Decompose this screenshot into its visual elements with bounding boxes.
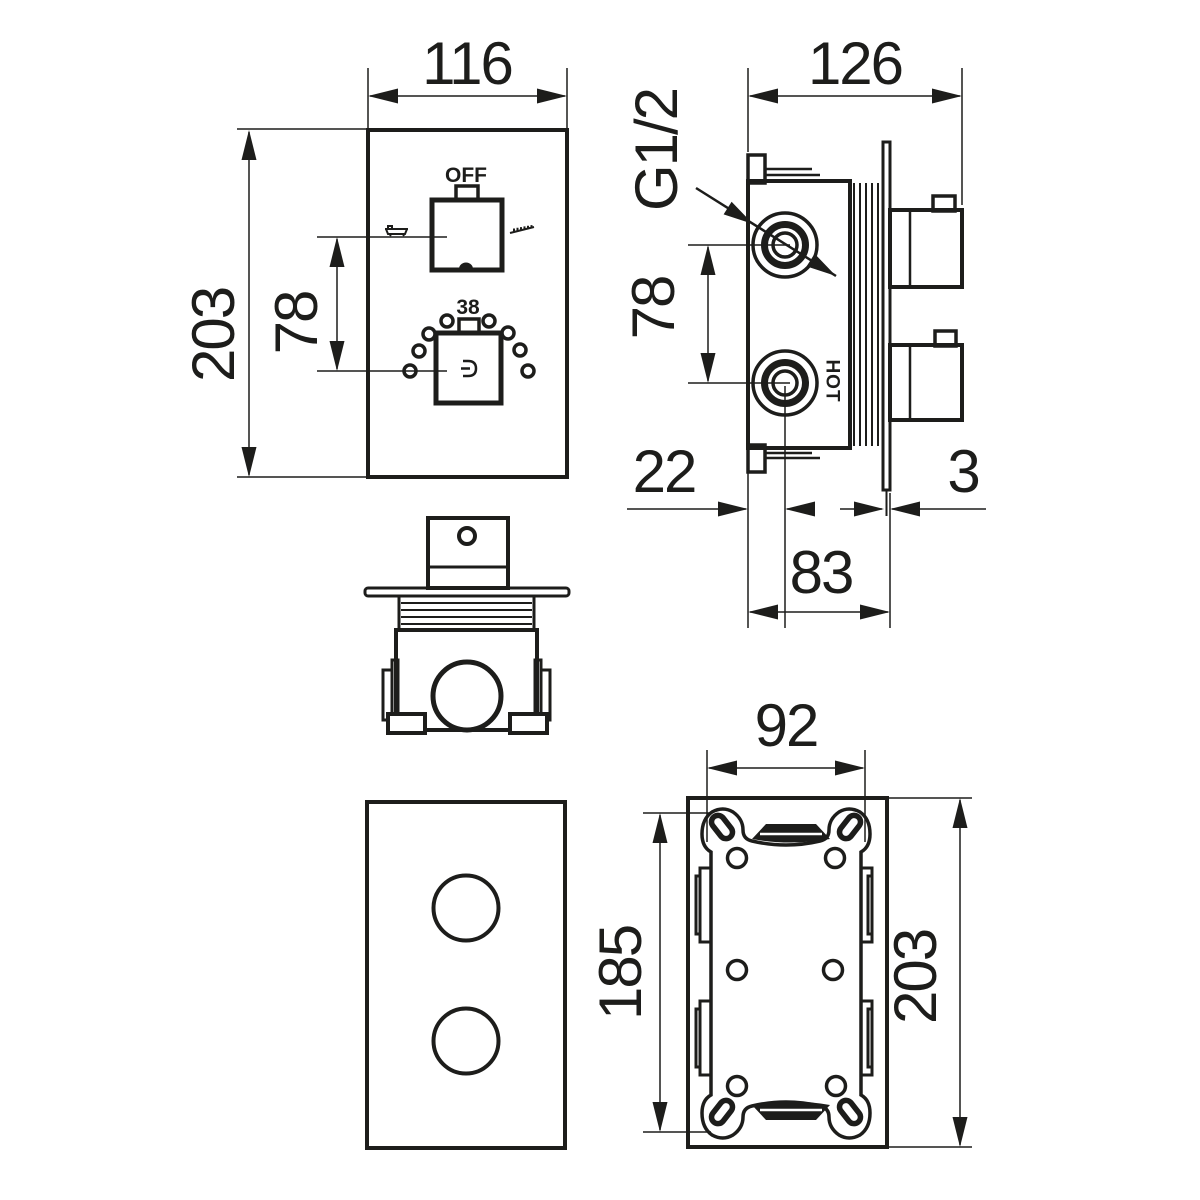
depth-83-label: 83	[790, 539, 853, 606]
hot-label: HOT	[821, 359, 842, 402]
body-tab-top	[748, 155, 765, 183]
front-width-label: 116	[422, 30, 512, 97]
box-height-label: 203	[882, 930, 949, 1024]
handle-upper	[890, 210, 962, 287]
bath-icon	[385, 226, 408, 236]
off-label: OFF	[445, 164, 487, 187]
labels: 116 203 78 OFF 38 126 G1/2 78 22 3 83 HO…	[180, 30, 979, 1024]
handle-lower	[890, 345, 962, 420]
front-spacing-dimension	[330, 237, 345, 371]
thread-lines	[401, 603, 532, 624]
plate-side-clips	[696, 868, 872, 1075]
housing-foot-right	[510, 714, 547, 733]
valve-body-view	[365, 518, 569, 733]
thread-size-label: G1/2	[623, 89, 690, 211]
wall-plate	[883, 142, 890, 490]
side-spacing-label: 78	[620, 277, 687, 340]
plate-height-label: 185	[587, 926, 654, 1020]
plate-3-label: 3	[947, 438, 978, 505]
diverter-knob-notch	[459, 263, 473, 270]
side-width-label: 126	[808, 30, 902, 97]
box-width-label: 92	[755, 692, 818, 759]
pipe-port	[433, 662, 501, 730]
offset-22-label: 22	[633, 438, 696, 505]
thread-ribs	[854, 183, 878, 446]
front-view	[237, 68, 567, 477]
side-spacing-dimension	[701, 245, 716, 383]
front-height-label: 203	[180, 288, 247, 382]
pipe-cover-tabs	[752, 824, 830, 1120]
technical-drawing: 116 203 78 OFF 38 126 G1/2 78 22 3 83 HO…	[0, 0, 1200, 1200]
housing-foot-left	[388, 714, 425, 733]
shower-spray-icon	[510, 225, 534, 233]
cover-hole-lower	[434, 1009, 499, 1074]
housing-side-clips	[383, 660, 550, 720]
cover-hole-upper	[434, 876, 499, 941]
mounting-holes	[728, 849, 846, 1096]
knob-screw-hole	[459, 528, 475, 544]
cover-plate-view	[367, 802, 565, 1148]
depth-dimension	[748, 605, 890, 620]
box-outline	[688, 798, 887, 1147]
front-spacing-label: 78	[263, 292, 330, 355]
brand-logo-icon	[461, 361, 476, 376]
diverter-knob	[432, 200, 502, 270]
temp-38-label: 38	[456, 296, 480, 319]
drawing-canvas: 116 203 78 OFF 38 126 G1/2 78 22 3 83 HO…	[0, 0, 1200, 1200]
cover-plate-outline	[367, 802, 565, 1148]
